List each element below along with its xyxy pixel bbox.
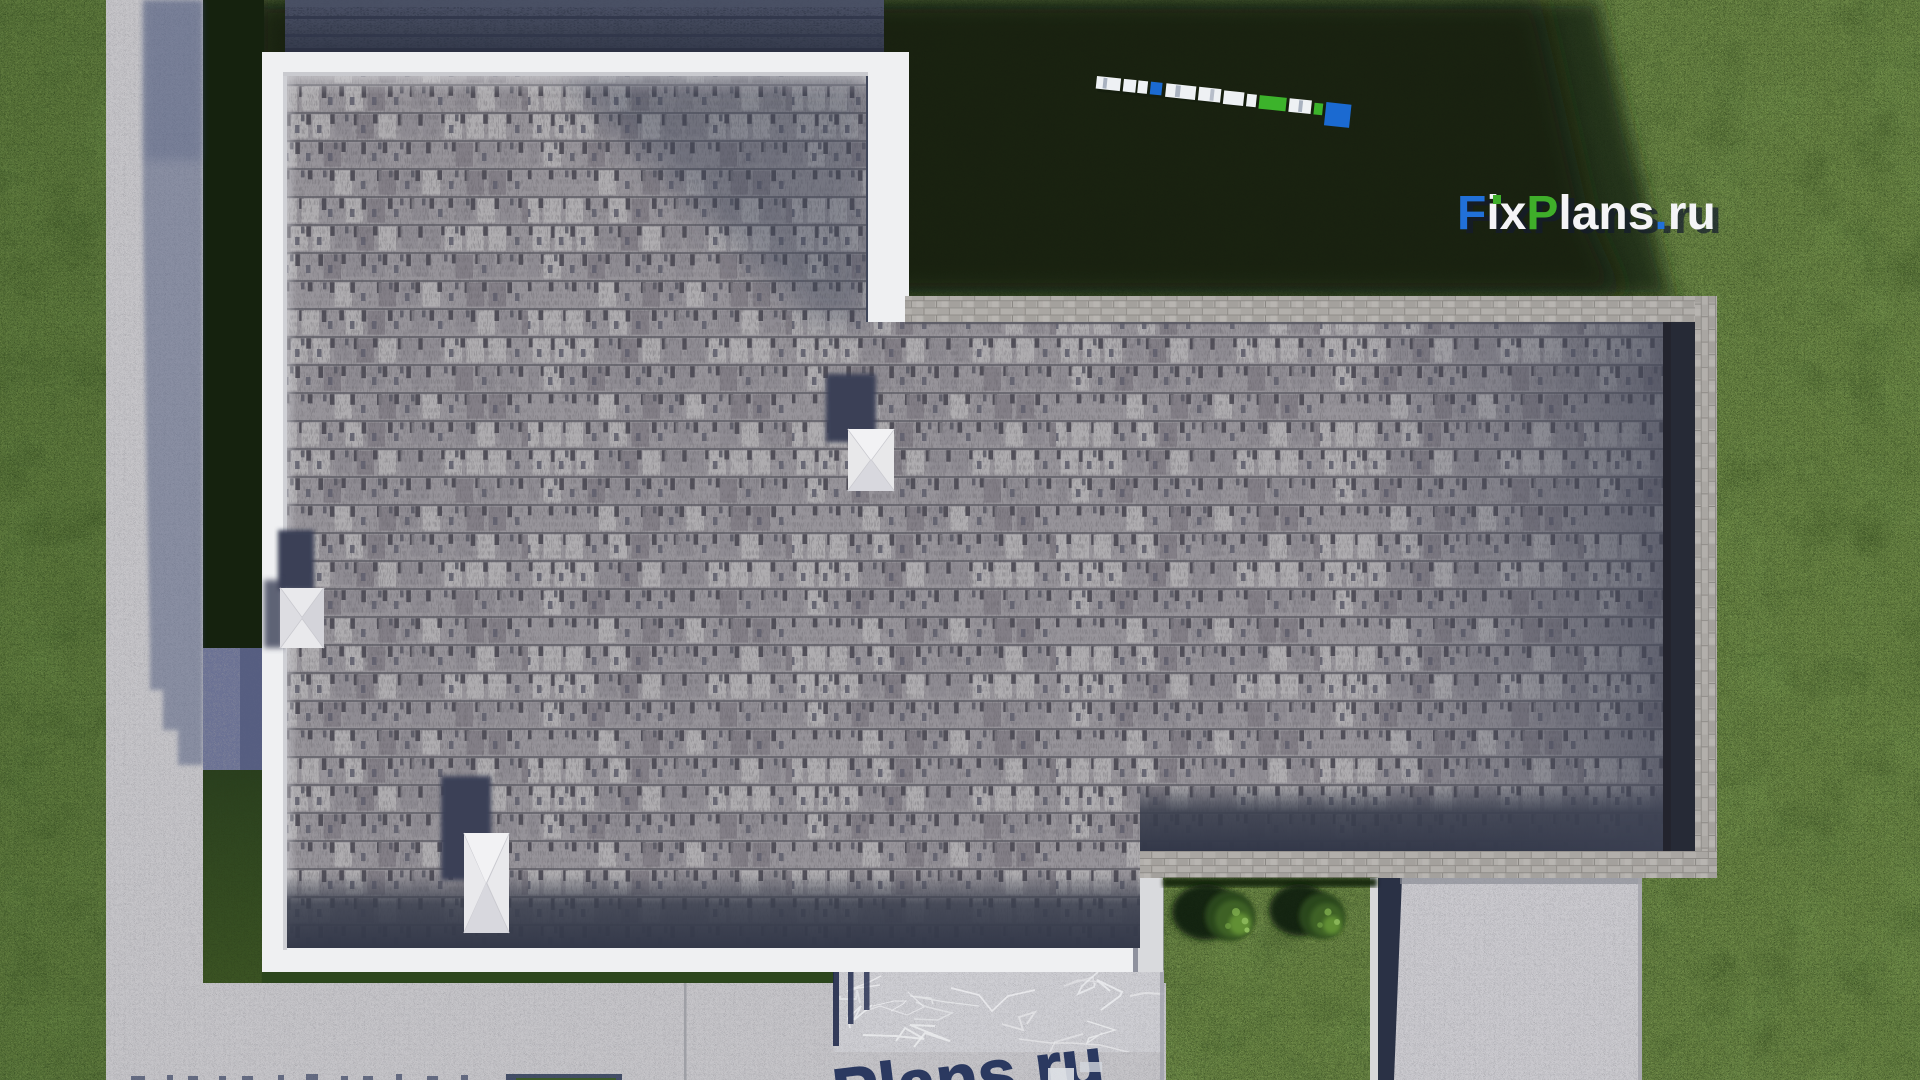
svg-text:FixPlans.ru: FixPlans.ru — [1457, 187, 1716, 240]
